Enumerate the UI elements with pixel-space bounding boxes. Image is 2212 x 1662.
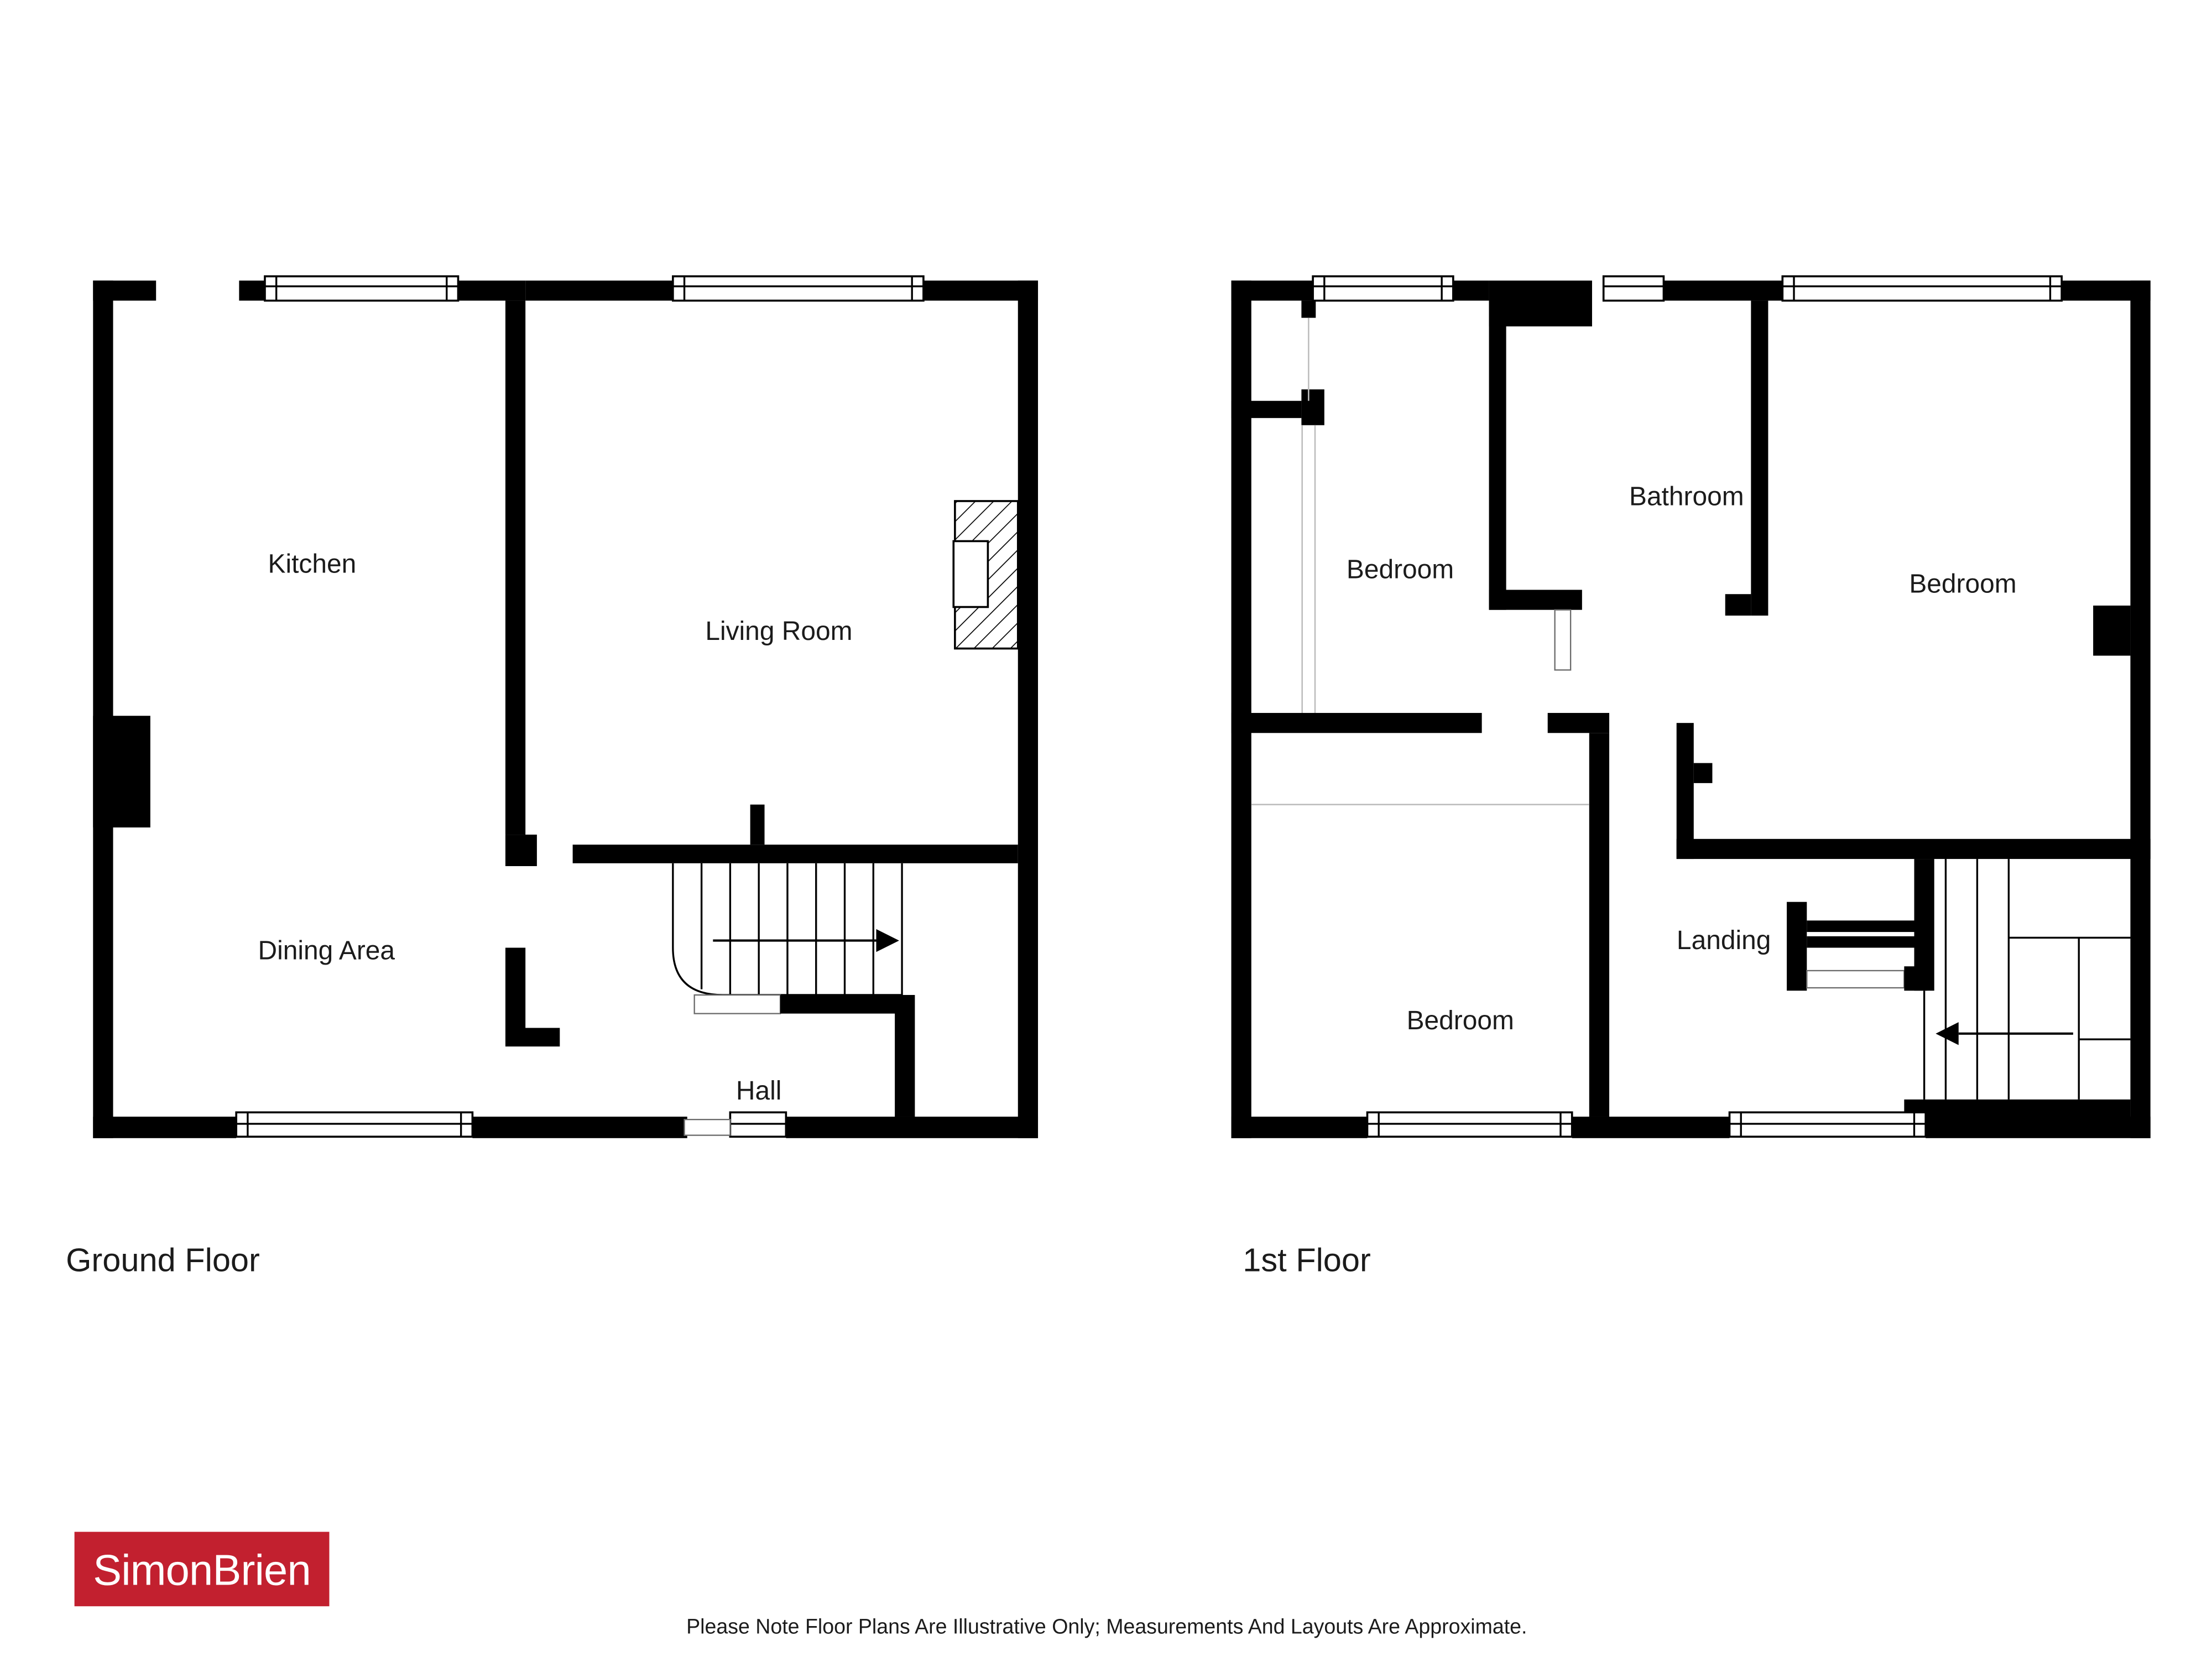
wall-segment [1232, 401, 1302, 418]
closet-door-opening [1807, 971, 1904, 988]
wall-segment [1904, 1100, 2130, 1118]
room-label-landing: Landing [1677, 926, 1771, 955]
wall-segment [1677, 723, 1694, 859]
bathroom-door-opening [1555, 610, 1571, 670]
room-label-hall: Hall [736, 1076, 781, 1106]
wall-segment [786, 1117, 1038, 1138]
wall-segment [573, 845, 1018, 863]
wall-segment [505, 948, 525, 1028]
wall-segment [1548, 713, 1609, 733]
wall-segment [1232, 1117, 1368, 1138]
wall-segment [505, 835, 537, 866]
wall-segment [505, 301, 525, 835]
wall-segment [239, 280, 265, 300]
wall-segment [93, 280, 113, 1138]
wall-segment [780, 995, 902, 1014]
wall-segment [1453, 280, 1489, 300]
room-label-kitchen: Kitchen [268, 549, 357, 579]
wall-segment [93, 280, 156, 300]
wall-segment [93, 1117, 236, 1138]
room-label-bedroom-bottom: Bedroom [1407, 1006, 1514, 1035]
page-background [0, 0, 2212, 1659]
living-room-window [673, 277, 924, 301]
wall-segment [505, 1028, 560, 1046]
dining-area-window [236, 1112, 472, 1137]
wall-segment [1807, 936, 1927, 948]
first-floor-caption: 1st Floor [1243, 1242, 1371, 1279]
wall-segment [1301, 389, 1324, 425]
wall-segment [1751, 301, 1768, 616]
front-door-opening [685, 1119, 731, 1135]
logo-text: SimonBrien [93, 1546, 311, 1594]
wall-segment [1663, 280, 1782, 300]
wall-segment [750, 805, 765, 845]
bedroom-top-left-window [1313, 277, 1453, 301]
fireplace-recess [953, 541, 988, 607]
wall-segment [1787, 902, 1807, 991]
wall-segment [1914, 859, 1934, 991]
bathroom-window [1604, 277, 1664, 301]
wall-segment [458, 280, 525, 300]
wall-segment [1232, 713, 1482, 733]
wall-segment [1694, 763, 1713, 783]
wall-segment [472, 1117, 687, 1138]
wall-segment [1232, 280, 1313, 300]
landing-bottom-window [1730, 1112, 1926, 1137]
wall-segment [924, 280, 1038, 300]
stair-top-wall [1677, 839, 2151, 859]
room-label-bathroom: Bathroom [1629, 482, 1744, 512]
disclaimer-text: Please Note Floor Plans Are Illustrative… [686, 1614, 1527, 1638]
wall-segment [1926, 1117, 2150, 1138]
wall-segment [1725, 594, 1751, 616]
agency-logo: SimonBrien [75, 1532, 330, 1607]
fireplace [953, 501, 1018, 649]
room-label-bedroom-top-left: Bedroom [1347, 555, 1454, 585]
wall-segment [1489, 301, 1506, 610]
bedroom-right-chimney [2093, 606, 2130, 656]
bedroom-right-window [1782, 277, 2062, 301]
wall-segment [525, 280, 673, 300]
kitchen-window [265, 277, 458, 301]
wall-segment [2062, 280, 2151, 300]
wall-segment [1807, 920, 1927, 932]
wall-segment [1589, 733, 1609, 1117]
hall-window [730, 1112, 786, 1137]
wall-segment [1018, 280, 1038, 1138]
wall-segment [1489, 590, 1582, 609]
floor-plan-canvas: Kitchen Living Room Dining Area Hall Gro… [0, 0, 2212, 1659]
wall-segment [1301, 301, 1316, 318]
dining-chimney-breast [93, 716, 150, 827]
bedroom-bottom-window [1367, 1112, 1572, 1137]
room-label-living-room: Living Room [705, 617, 852, 646]
stair-newel-strip [695, 995, 780, 1014]
room-label-bedroom-right: Bedroom [1909, 570, 2016, 599]
ground-floor-caption: Ground Floor [66, 1242, 260, 1279]
wall-segment [2130, 280, 2150, 1138]
room-label-dining-area: Dining Area [258, 936, 395, 965]
wall-segment [1572, 1117, 1730, 1138]
